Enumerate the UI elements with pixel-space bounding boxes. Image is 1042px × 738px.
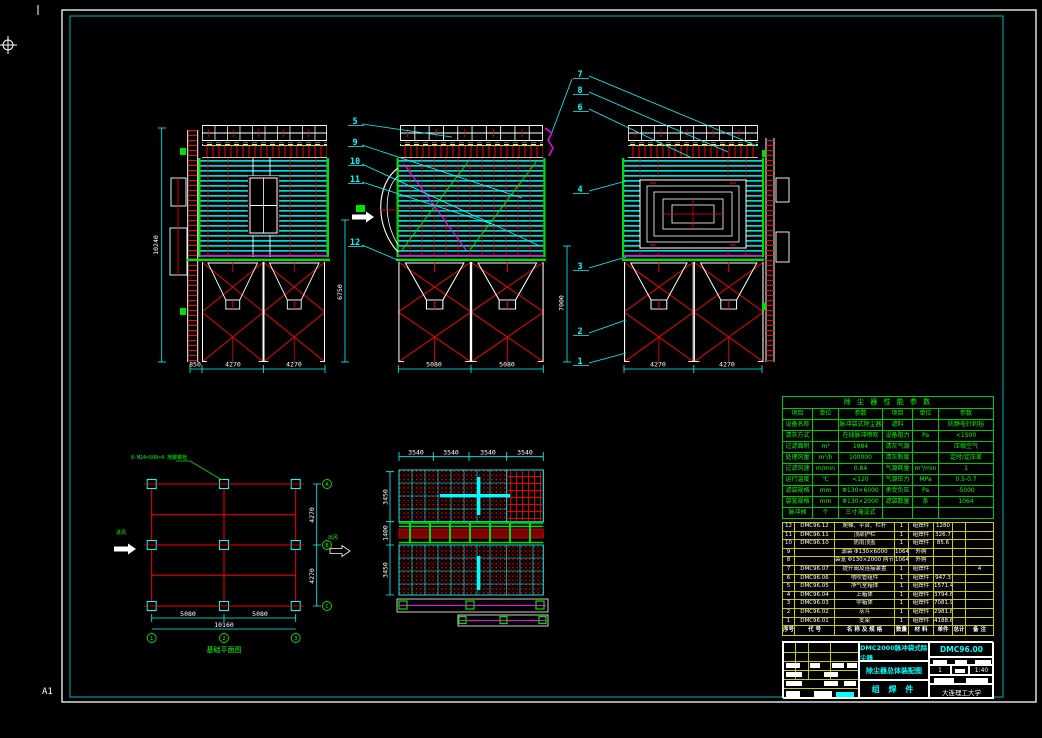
table-cell: mm	[813, 486, 839, 497]
table-cell: m²	[813, 442, 839, 453]
table-cell: 条	[913, 497, 939, 508]
table-cell	[934, 565, 953, 574]
table-row: 运行温度℃<120气源压力MPa0.5-0.7	[783, 475, 994, 486]
table-cell	[795, 557, 835, 566]
table-cell: 12	[783, 523, 795, 532]
table-cell: 气源压力	[883, 475, 913, 486]
walkway-strips	[397, 599, 548, 626]
table-cell: 1984	[839, 442, 883, 453]
dimension-middle-bottom: 5080 5080	[398, 361, 543, 374]
table-cell: 1280	[934, 523, 953, 532]
svg-text:3540: 3540	[408, 449, 424, 457]
table-cell	[966, 540, 994, 549]
dimension-side-bottom: 4270 4270	[624, 361, 762, 374]
table-cell: 喷吹管组件	[835, 574, 895, 583]
table-cell: 1	[895, 540, 909, 549]
inlet-arrow	[352, 205, 374, 223]
table-cell: 1	[895, 617, 909, 626]
svg-text:A: A	[325, 482, 329, 488]
callout-9: 9	[352, 138, 357, 148]
table-cell: 在线脉冲喷吹	[839, 431, 883, 442]
table-row: 9滤袋 Φ130×60001064外购	[783, 548, 994, 557]
svg-text:5080: 5080	[426, 361, 442, 369]
table-cell: 1	[895, 565, 909, 574]
table-cell: 0.5-0.7	[939, 475, 994, 486]
svg-text:3450: 3450	[382, 562, 390, 578]
bom-table: 12DMC96.12爬梯、平台、栏杆1组焊件128011DMC96.11顶部护栏…	[782, 522, 994, 636]
table-cell	[813, 420, 839, 431]
table-cell: Φ130×2000	[839, 497, 883, 508]
callout-4: 4	[577, 185, 582, 195]
table-cell: Pa	[913, 486, 939, 497]
svg-text:4270: 4270	[308, 507, 316, 523]
svg-text:1400: 1400	[382, 525, 390, 541]
table-cell: DMC96.04	[795, 591, 835, 600]
svg-text:10160: 10160	[214, 621, 234, 629]
table-cell	[966, 557, 994, 566]
table-cell: 1	[895, 574, 909, 583]
table-cell	[966, 523, 994, 532]
table-cell	[953, 600, 966, 609]
table-cell: DMC96.07	[795, 565, 835, 574]
drawing-title: 除尘器总体装配图	[859, 661, 929, 680]
table-row: 11DMC96.11顶部护栏1组焊件326.7	[783, 531, 994, 540]
svg-text:3: 3	[294, 636, 297, 642]
crosshair-icon	[0, 36, 17, 54]
table-cell: 滤袋数量	[883, 497, 913, 508]
table-cell: ℃	[813, 475, 839, 486]
table-cell	[883, 508, 913, 519]
table-cell: 1	[783, 617, 795, 626]
table-cell	[953, 608, 966, 617]
table-cell	[953, 574, 966, 583]
foundation-outlet-arrow	[330, 546, 350, 557]
table-row: 2DMC96.02灰斗1组焊件2981.8	[783, 608, 994, 617]
table-cell: 1	[895, 531, 909, 540]
right-view: 4270 4270	[622, 125, 789, 373]
table-cell: <1500	[939, 431, 994, 442]
table-cell: 1	[895, 608, 909, 617]
table-cell: 支架	[835, 617, 895, 626]
table-cell	[913, 442, 939, 453]
callout-2: 2	[577, 327, 582, 337]
table-cell: -5000	[939, 486, 994, 497]
table-cell: 设备阻力	[883, 431, 913, 442]
svg-text:4270: 4270	[719, 361, 735, 369]
svg-text:10240: 10240	[152, 235, 160, 255]
middle-view: 5080 5080 7000	[352, 125, 571, 373]
svg-text:5080: 5080	[180, 610, 196, 618]
table-cell: 设备名称	[783, 420, 813, 431]
title-block: DMC2000脉冲袋式除尘器 除尘器总体装配图 组 焊 件 DMC96.00 1…	[782, 641, 993, 698]
svg-text:B: B	[325, 543, 329, 549]
table-cell: DMC96.05	[795, 583, 835, 592]
table-cell: DMC96.03	[795, 600, 835, 609]
table-cell	[953, 591, 966, 600]
table-row: 处理风量m³/h100000清灰制度定时/定压差	[783, 453, 994, 464]
svg-text:4270: 4270	[308, 568, 316, 584]
table-cell	[966, 548, 994, 557]
table-cell: 防静电针刺毡	[939, 420, 994, 431]
bom-header-row: 序号代 号 名 称 及 规 格数量 材 料单件 总计备 注	[783, 626, 994, 636]
table-cell: 7	[783, 565, 795, 574]
table-cell	[966, 591, 994, 600]
table-cell: mm	[813, 497, 839, 508]
spec-table: 除 尘 器 性 能 参 数 项目单位 参数项目 单位参数 设备名称脉冲袋式除尘器…	[782, 396, 994, 519]
table-cell: 气源耗量	[883, 464, 913, 475]
table-cell: 组焊件	[909, 540, 934, 549]
table-cell: 滤料	[883, 420, 913, 431]
svg-text:4270: 4270	[286, 361, 302, 369]
table-cell: 清灰制度	[883, 453, 913, 464]
part-type: 组 焊 件	[859, 680, 929, 699]
table-cell: 1064	[895, 548, 909, 557]
table-cell: 顶部护栏	[835, 531, 895, 540]
foundation-caption: 基础平面图	[207, 645, 242, 654]
table-cell: 爬梯、平台、栏杆	[835, 523, 895, 532]
table-cell: 组焊件	[909, 591, 934, 600]
svg-text:C: C	[325, 604, 328, 610]
table-cell: 脉冲袋式除尘器	[839, 420, 883, 431]
table-row: 10DMC96.10防雨顶盖1组焊件85.6	[783, 540, 994, 549]
table-cell	[966, 531, 994, 540]
table-cell: 0.84	[839, 464, 883, 475]
table-cell: 组焊件	[909, 531, 934, 540]
table-cell	[953, 523, 966, 532]
table-cell: 组焊件	[909, 608, 934, 617]
table-cell: m/min	[813, 464, 839, 475]
title-block-revision-grid	[783, 642, 859, 699]
callout-8: 8	[577, 86, 582, 96]
table-cell: 上箱体	[835, 591, 895, 600]
table-cell: 9	[783, 548, 795, 557]
table-row: 8袋笼 Φ130×2000 两节式1064外购	[783, 557, 994, 566]
table-cell: 5	[783, 583, 795, 592]
callout-11: 11	[350, 175, 360, 185]
svg-text:3540: 3540	[517, 449, 533, 457]
table-cell: 1064	[939, 497, 994, 508]
table-cell: 清灰方式	[783, 431, 813, 442]
table-cell: 定时/定压差	[939, 453, 994, 464]
table-cell: DMC96.10	[795, 540, 835, 549]
table-cell: 滤袋规格	[783, 486, 813, 497]
table-cell: 组焊件	[909, 617, 934, 626]
table-cell: 85.6	[934, 540, 953, 549]
sheet-count-row	[929, 675, 994, 684]
foundation-outlet-label: 出风	[328, 534, 338, 541]
callout-1: 1	[577, 357, 582, 367]
svg-text:5080: 5080	[499, 361, 515, 369]
table-cell: Φ130×6000	[839, 486, 883, 497]
table-cell: 10	[783, 540, 795, 549]
anchor-bolt-note: 8-M24×500×4 地脚螺栓	[131, 454, 187, 461]
table-cell: 袋笼 Φ130×2000 两节式	[835, 557, 895, 566]
table-cell: 1064	[895, 557, 909, 566]
table-cell	[966, 574, 994, 583]
svg-text:4270: 4270	[225, 361, 241, 369]
table-cell: DMC96.02	[795, 608, 835, 617]
table-cell	[953, 557, 966, 566]
table-row: 清灰方式在线脉冲喷吹设备阻力Pa<1500	[783, 431, 994, 442]
cad-viewport[interactable]: A1	[0, 0, 1042, 738]
table-cell: 组焊件	[909, 565, 934, 574]
table-cell: 中箱体	[835, 600, 895, 609]
table-row: 12DMC96.12爬梯、平台、栏杆1组焊件1280	[783, 523, 994, 532]
table-cell	[966, 583, 994, 592]
table-cell	[953, 565, 966, 574]
svg-text:2: 2	[222, 636, 225, 642]
svg-text:6750: 6750	[336, 284, 344, 300]
table-cell: 组焊件	[909, 600, 934, 609]
table-cell	[813, 431, 839, 442]
drawing-number: DMC96.00	[929, 642, 994, 657]
table-cell: 清灰气源	[883, 442, 913, 453]
front-view: 10240 6750 850 4270 4270	[152, 125, 349, 373]
spec-table-title: 除 尘 器 性 能 参 数	[783, 397, 994, 409]
table-cell	[953, 617, 966, 626]
table-cell: 个	[813, 508, 839, 519]
table-cell	[934, 557, 953, 566]
svg-text:3540: 3540	[480, 449, 496, 457]
table-cell: 脉冲阀	[783, 508, 813, 519]
table-cell: 8	[783, 557, 795, 566]
table-cell	[953, 583, 966, 592]
dimension-front-lower-height: 6750	[336, 220, 349, 362]
svg-text:4270: 4270	[650, 361, 666, 369]
table-cell: DMC96.01	[795, 617, 835, 626]
table-cell: 净气室箱体	[835, 583, 895, 592]
table-cell: MPa	[913, 475, 939, 486]
callout-10: 10	[350, 157, 360, 167]
table-cell: 7081.9	[934, 600, 953, 609]
table-cell: 外购	[909, 548, 934, 557]
table-cell	[913, 420, 939, 431]
table-cell: 4	[783, 591, 795, 600]
table-row: 过滤面积m²1984清灰气源压缩空气	[783, 442, 994, 453]
table-row: 过滤风速m/min0.84气源耗量m³/min1	[783, 464, 994, 475]
svg-text:7000: 7000	[558, 295, 566, 311]
table-cell: 2981.8	[934, 608, 953, 617]
table-cell: 1	[939, 464, 994, 475]
table-cell: 过滤面积	[783, 442, 813, 453]
table-cell: 滤袋 Φ130×6000	[835, 548, 895, 557]
table-cell: 3794.6	[934, 591, 953, 600]
spec-header-row: 项目单位 参数项目 单位参数	[783, 409, 994, 420]
table-cell	[953, 531, 966, 540]
table-cell: 防雨顶盖	[835, 540, 895, 549]
table-cell	[795, 548, 835, 557]
foundation-inlet-arrow	[114, 544, 136, 555]
table-cell: 过滤风速	[783, 464, 813, 475]
table-cell: DMC96.12	[795, 523, 835, 532]
table-cell: 1	[895, 523, 909, 532]
table-cell: DMC96.06	[795, 574, 835, 583]
table-row: 4DMC96.04上箱体1组焊件3794.6	[783, 591, 994, 600]
table-cell: 三寸淹没式	[839, 508, 883, 519]
table-cell	[966, 608, 994, 617]
sheet-size-label: A1	[42, 687, 53, 697]
table-cell	[966, 600, 994, 609]
svg-text:3450: 3450	[382, 489, 390, 505]
table-cell	[913, 453, 939, 464]
svg-text:1: 1	[150, 636, 153, 642]
table-cell: 承受负压	[883, 486, 913, 497]
scale-value: 1:40	[969, 665, 994, 675]
table-cell: 压缩空气	[939, 442, 994, 453]
product-name: DMC2000脉冲袋式除尘器	[859, 642, 929, 661]
table-cell: 4188.6	[934, 617, 953, 626]
table-cell: 外购	[909, 557, 934, 566]
table-row: 6DMC96.06喷吹管组件1组焊件947.3	[783, 574, 994, 583]
table-cell: 947.3	[934, 574, 953, 583]
table-cell: 100000	[839, 453, 883, 464]
table-cell: 袋笼规格	[783, 497, 813, 508]
stage-value: 1	[929, 665, 951, 675]
weight-value	[951, 665, 969, 675]
svg-text:850: 850	[189, 361, 201, 369]
organization: 大连理工大学	[929, 684, 994, 699]
table-cell: 1	[895, 600, 909, 609]
table-cell: 1	[895, 583, 909, 592]
table-cell: Pa	[913, 431, 939, 442]
table-row: 袋笼规格mmΦ130×2000滤袋数量条1064	[783, 497, 994, 508]
table-cell: 组焊件	[909, 523, 934, 532]
table-row: 5DMC96.05净气室箱体1组焊件1571.4	[783, 583, 994, 592]
table-cell: 组焊件	[909, 583, 934, 592]
table-cell	[966, 617, 994, 626]
table-row: 3DMC96.03中箱体1组焊件7081.9	[783, 600, 994, 609]
table-cell: m³/h	[813, 453, 839, 464]
callout-7: 7	[577, 70, 582, 80]
table-row: 1DMC96.01支架1组焊件4188.6	[783, 617, 994, 626]
table-cell	[913, 508, 939, 519]
table-row: 设备名称脉冲袋式除尘器滤料防静电针刺毡	[783, 420, 994, 431]
dimension-middle-lower-height: 7000	[558, 246, 572, 362]
table-cell: 4	[966, 565, 994, 574]
table-cell: 组焊件	[909, 574, 934, 583]
callout-3: 3	[577, 262, 582, 272]
callout-5: 5	[352, 117, 357, 127]
table-row: 7DMC96.07提升阀及连接装置1组焊件4	[783, 565, 994, 574]
svg-text:5080: 5080	[252, 610, 268, 618]
table-cell	[953, 548, 966, 557]
callout-6: 6	[577, 103, 582, 113]
plan-view: 3540 3540 3540 3540 3450 1400 3450	[382, 449, 549, 627]
table-cell: 326.7	[934, 531, 953, 540]
callout-12: 12	[350, 238, 360, 248]
table-cell: 灰斗	[835, 608, 895, 617]
dimension-front-bottom: 850 4270 4270	[189, 361, 325, 374]
foundation-inlet-label: 进风	[116, 529, 126, 536]
foundation-plan: 8-M24×500×4 地脚螺栓 4270 4270 A B C 1 2 3 5…	[114, 454, 350, 654]
table-cell	[953, 540, 966, 549]
table-cell: 1571.4	[934, 583, 953, 592]
table-cell: 11	[783, 531, 795, 540]
table-cell	[934, 548, 953, 557]
table-cell: <120	[839, 475, 883, 486]
table-row: 滤袋规格mmΦ130×6000承受负压Pa-5000	[783, 486, 994, 497]
stage-label-row	[929, 657, 994, 665]
table-cell: 2	[783, 608, 795, 617]
table-cell: 6	[783, 574, 795, 583]
table-cell: 3	[783, 600, 795, 609]
svg-text:3540: 3540	[443, 449, 459, 457]
table-cell: 提升阀及连接装置	[835, 565, 895, 574]
table-cell	[939, 508, 994, 519]
dimension-front-height: 10240	[152, 128, 166, 362]
table-row: 脉冲阀个三寸淹没式	[783, 508, 994, 519]
table-cell: 1	[895, 591, 909, 600]
table-cell: DMC96.11	[795, 531, 835, 540]
table-cell: 处理风量	[783, 453, 813, 464]
table-cell: 运行温度	[783, 475, 813, 486]
table-cell: m³/min	[913, 464, 939, 475]
